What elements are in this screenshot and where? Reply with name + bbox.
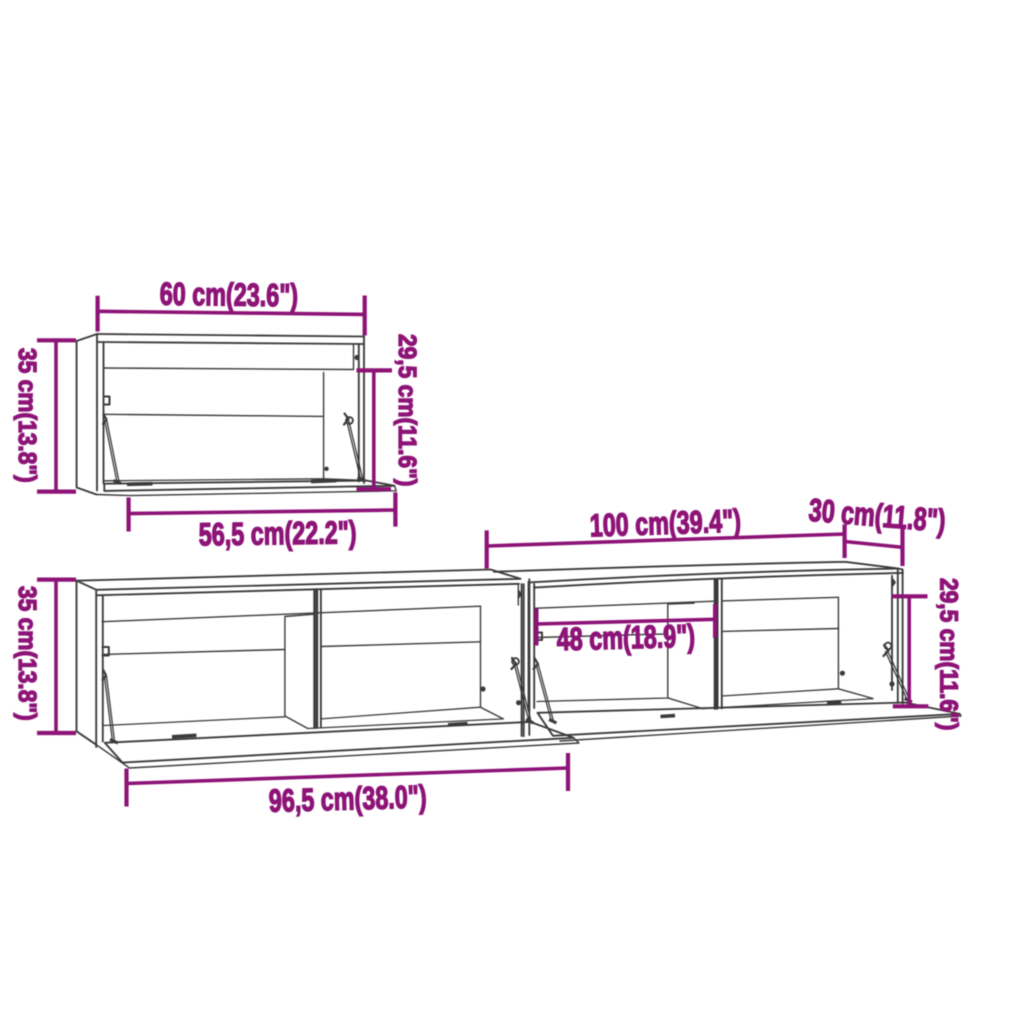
svg-text:35 cm(13.8"): 35 cm(13.8") — [13, 586, 41, 721]
svg-text:29,5 cm(11.6"): 29,5 cm(11.6") — [934, 578, 962, 730]
svg-text:56,5 cm(22.2"): 56,5 cm(22.2") — [198, 514, 356, 552]
svg-text:48 cm(18.9"): 48 cm(18.9") — [556, 618, 695, 658]
svg-text:29,5 cm(11.6"): 29,5 cm(11.6") — [393, 334, 421, 486]
svg-text:96,5 cm(38.0"): 96,5 cm(38.0") — [268, 778, 427, 818]
svg-text:35 cm(13.8"): 35 cm(13.8") — [13, 348, 41, 483]
svg-text:60 cm(23.6"): 60 cm(23.6") — [160, 276, 299, 314]
svg-text:100 cm(39.4"): 100 cm(39.4") — [589, 503, 741, 544]
